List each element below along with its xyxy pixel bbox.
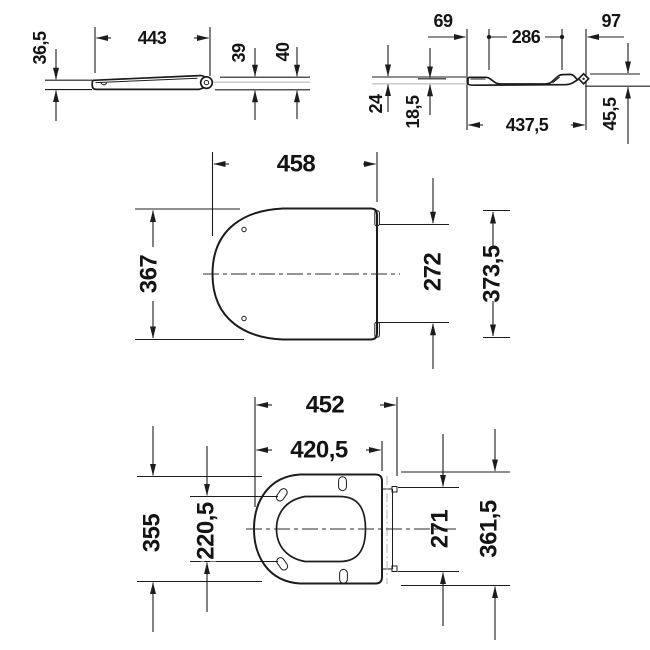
dim-front-heights-ring: 24 18,5 bbox=[366, 45, 467, 129]
dim-label-36-5: 36,5 bbox=[30, 31, 50, 65]
view-side-ring: 69 286 97 437,5 24 bbox=[366, 11, 650, 144]
dim-label-458: 458 bbox=[277, 151, 316, 178]
dim-middle-length: 286 bbox=[487, 27, 564, 47]
dim-label-45-5: 45,5 bbox=[600, 97, 620, 131]
dim-label-271: 271 bbox=[427, 510, 454, 549]
dim-label-420-5: 420,5 bbox=[290, 437, 348, 464]
view-top-ring: 452 420,5 355 220,5 bbox=[137, 392, 510, 641]
dim-ring-length: 420,5 bbox=[257, 437, 383, 472]
dim-label-220-5: 220,5 bbox=[193, 502, 220, 560]
dim-label-24: 24 bbox=[366, 94, 386, 114]
dim-lid-overall-width: 373,5 bbox=[479, 211, 511, 338]
dim-ring-hinge-width: 271 bbox=[398, 434, 459, 626]
dim-rear-heights-closed: 39 40 bbox=[213, 42, 310, 120]
dim-front-lip: 69 bbox=[428, 11, 466, 37]
dim-rear-length: 97 bbox=[588, 11, 625, 37]
dim-label-355: 355 bbox=[139, 514, 166, 553]
technical-drawing-canvas: 443 36,5 39 40 bbox=[0, 0, 650, 650]
hinge-cap-icon bbox=[201, 77, 213, 89]
dim-label-443: 443 bbox=[138, 28, 167, 48]
ring-outline bbox=[246, 475, 456, 585]
dim-label-18-5: 18,5 bbox=[403, 95, 423, 129]
dim-length-closed: 443 bbox=[95, 27, 210, 76]
dim-label-367: 367 bbox=[136, 255, 163, 294]
dim-rear-height-ring: 45,5 bbox=[585, 43, 650, 144]
dim-label-39: 39 bbox=[229, 43, 249, 63]
seat-closed-profile bbox=[92, 76, 212, 90]
dim-label-452: 452 bbox=[306, 392, 345, 419]
lid-outline bbox=[203, 209, 400, 340]
dim-lid-hinge-width: 272 bbox=[379, 178, 449, 369]
dim-label-361-5: 361,5 bbox=[476, 500, 503, 558]
dim-label-69: 69 bbox=[433, 11, 453, 31]
dim-label-373-5: 373,5 bbox=[479, 245, 506, 303]
seat-ring-profile bbox=[468, 74, 589, 85]
dim-label-272: 272 bbox=[420, 253, 447, 292]
drawing-svg: 443 36,5 39 40 bbox=[0, 0, 650, 650]
view-side-closed: 443 36,5 39 40 bbox=[30, 27, 310, 121]
dim-overall-length-ring: 437,5 bbox=[469, 115, 585, 135]
dim-label-437-5: 437,5 bbox=[506, 115, 549, 135]
dim-ring-overall-width: 361,5 bbox=[401, 429, 510, 640]
dim-front-height-closed: 36,5 bbox=[30, 31, 92, 121]
view-top-lid: 458 367 272 373,5 bbox=[135, 151, 510, 370]
hinge-bracket bbox=[382, 476, 397, 584]
hinge-pin-dot bbox=[582, 78, 584, 80]
dim-label-286: 286 bbox=[512, 27, 541, 47]
dim-label-40: 40 bbox=[273, 42, 293, 62]
dim-label-97: 97 bbox=[601, 11, 621, 31]
